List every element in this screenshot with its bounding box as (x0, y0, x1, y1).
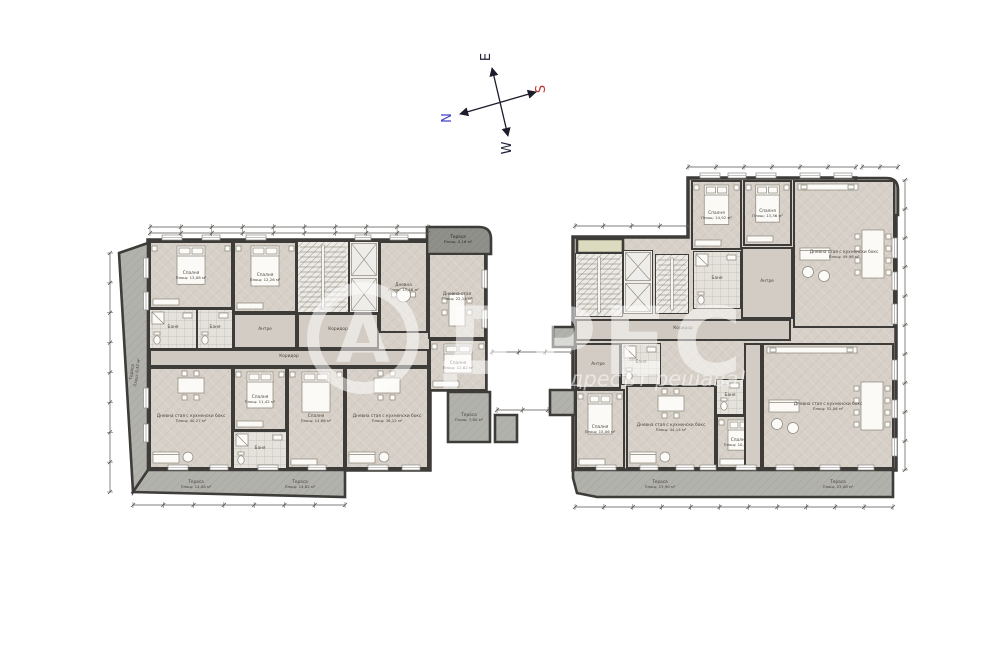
room-area: Площ: 13,08 м² (176, 275, 207, 280)
nightstand-icon (432, 344, 437, 349)
bed-pillow (304, 374, 315, 380)
bed-pillow (718, 187, 727, 193)
sink-icon (183, 313, 192, 318)
wardrobe-icon (720, 459, 746, 465)
toilet-tank (154, 332, 160, 335)
room: СпалняПлощ: 13,36 м² (744, 181, 791, 245)
kitchen-sink (801, 185, 807, 189)
room-label: Антре (760, 278, 774, 284)
room-area: Площ: 49,98 м² (829, 254, 860, 259)
compass-n-label: N (440, 113, 455, 123)
nightstand-icon (289, 246, 294, 251)
wardrobe-icon (237, 421, 263, 427)
nightstand-icon (746, 185, 751, 190)
armchair-icon (379, 452, 389, 462)
sink-icon (273, 435, 282, 440)
room-area: Площ: 14,62 м² (285, 484, 316, 489)
terrace-area (577, 239, 623, 253)
floor-plan-svg: ТерасаПлощ: 9,42 м²ТерасаПлощ: 14,08 м²Т… (0, 0, 1000, 666)
room: СпалняПлощ: 15,06 м² (576, 390, 624, 468)
room-name: Баня (168, 324, 179, 330)
room-name: Баня (210, 324, 221, 330)
room-label: Баня (712, 275, 723, 281)
room: Антре (742, 248, 792, 318)
chair-icon (182, 395, 187, 400)
armchair-icon (788, 423, 799, 434)
wardrobe-icon (153, 299, 179, 305)
armchair-icon (803, 267, 814, 278)
chair-icon (886, 246, 891, 251)
toilet-tank (721, 398, 727, 401)
room-area: Площ: 23,08 м² (823, 484, 854, 489)
armchair-icon (772, 419, 783, 430)
toilet-icon (238, 456, 244, 464)
toilet-icon (721, 402, 727, 410)
dining-table-icon (658, 396, 684, 411)
nightstand-icon (279, 372, 284, 377)
terrace-area (495, 415, 517, 442)
toilet-tank (238, 452, 244, 455)
kitchen-stove (847, 348, 853, 352)
watermark-slogan: адресът решава! (556, 367, 747, 391)
bed-pillow (249, 374, 259, 380)
sink-icon (219, 313, 228, 318)
watermark-logo-letter: А (336, 297, 390, 379)
compass-w-label: W (500, 141, 515, 154)
room-area: Площ: 36,12 м² (372, 418, 403, 423)
room-name: Антре (258, 326, 272, 332)
wardrobe-icon (579, 459, 605, 465)
chair-icon (886, 270, 891, 275)
room: Дневна стая с кухненски боксПлощ: 40,27 … (150, 368, 232, 468)
bed-pillow (192, 248, 203, 254)
wardrobe-icon (237, 303, 263, 309)
bed-pillow (730, 422, 738, 428)
room-label: Баня (210, 324, 221, 330)
room-area: Площ: 40,27 м² (176, 418, 207, 423)
bed-pillow (253, 248, 264, 254)
chair-icon (854, 410, 859, 415)
bed-pillow (758, 187, 767, 193)
room-area: Площ: 14,08 м² (181, 484, 212, 489)
floor-plan-page: ТерасаПлощ: 9,42 м²ТерасаПлощ: 14,08 м²Т… (0, 0, 1000, 666)
chair-icon (182, 371, 187, 376)
room-area: Площ: 14,86 м² (301, 418, 332, 423)
room-name: Коридор (279, 353, 299, 359)
chair-icon (855, 270, 860, 275)
room: СпалняПлощ: 12,26 м² (234, 242, 296, 312)
armchair-icon (660, 452, 670, 462)
chair-icon (886, 234, 891, 239)
terrace: ТерасаПлощ: 5,16 м² (427, 227, 491, 254)
sofa-icon (349, 452, 375, 463)
armchair-icon (819, 271, 830, 282)
room: Дневна стая с кухненски боксПлощ: 52,06 … (763, 344, 893, 468)
sink-icon (727, 255, 736, 260)
room-area: Площ: 12,26 м² (250, 277, 281, 282)
nightstand-icon (290, 372, 295, 377)
chair-icon (855, 234, 860, 239)
bed-pillow (706, 187, 715, 193)
room-label: Коридор (279, 353, 299, 359)
room-area: Площ: 15,06 м² (585, 429, 616, 434)
room-area: Площ: 5,16 м² (444, 239, 473, 244)
sofa-icon (153, 452, 179, 463)
chair-icon (885, 410, 890, 415)
chair-icon (854, 386, 859, 391)
room-area: Площ: 13,90 м² (645, 484, 676, 489)
room: Баня (198, 310, 232, 348)
room: Баня (234, 432, 286, 468)
room-label: Баня (255, 445, 266, 451)
kitchen-sink (770, 348, 776, 352)
compass-e-label: E (479, 53, 494, 61)
chair-icon (674, 413, 679, 418)
terrace (495, 415, 517, 442)
bed-pillow (769, 187, 778, 193)
room-area: Площ: 44,14 м² (656, 427, 687, 432)
room: СпалняПлощ: 14,92 м² (692, 181, 741, 249)
bed-pillow (261, 374, 271, 380)
room-label: Баня (168, 324, 179, 330)
compass-rose: E W N S (440, 53, 549, 155)
chair-icon (886, 258, 891, 263)
chair-icon (662, 413, 667, 418)
kitchen-stove (848, 185, 854, 189)
toilet-tank (202, 332, 208, 335)
room: СпалняПлощ: 11,42 м² (234, 368, 286, 430)
wardrobe-icon (747, 236, 773, 242)
sofa-icon (630, 452, 656, 463)
kitchen-counter-icon (767, 347, 857, 353)
terrace: ТерасаПлощ: 9,42 м² (119, 243, 148, 492)
chair-icon (194, 395, 199, 400)
room-area: Площ: 13,36 м² (752, 213, 783, 218)
terrace (577, 239, 623, 253)
room-name: Баня (255, 445, 266, 451)
room: Антре (234, 314, 296, 348)
nightstand-icon (152, 246, 157, 251)
dining-table-icon (861, 382, 883, 430)
toilet-icon (202, 336, 208, 344)
toilet-icon (154, 336, 160, 344)
watermark: А ДРЕС адресът решава! (313, 288, 748, 397)
nightstand-icon (694, 185, 699, 190)
nightstand-icon (236, 372, 241, 377)
room-area: Площ: 11,42 м² (245, 399, 276, 404)
compass-s-label: S (534, 85, 549, 93)
room-name: Баня (712, 275, 723, 281)
bed-pillow (266, 248, 277, 254)
nightstand-icon (734, 185, 739, 190)
room: СпалняПлощ: 13,08 м² (150, 242, 232, 308)
room-area: Площ: 52,06 м² (813, 406, 844, 411)
room-area: Площ: 7,80 м² (455, 417, 484, 422)
nightstand-icon (784, 185, 789, 190)
nightstand-icon (236, 246, 241, 251)
wardrobe-icon (695, 240, 721, 246)
room: Дневна стая с кухненски боксПлощ: 49,98 … (794, 181, 894, 327)
room: Баня (150, 310, 196, 348)
room-area: Площ: 14,92 м² (701, 215, 732, 220)
room-label: Антре (258, 326, 272, 332)
chair-icon (885, 398, 890, 403)
terrace: ТерасаПлощ: 7,80 м² (448, 392, 490, 442)
chair-icon (885, 386, 890, 391)
chair-icon (390, 395, 395, 400)
room-name: Антре (760, 278, 774, 284)
chair-icon (378, 395, 383, 400)
armchair-icon (183, 452, 193, 462)
bed-pillow (179, 248, 190, 254)
chair-icon (854, 422, 859, 427)
nightstand-icon (225, 246, 230, 251)
wardrobe-icon (291, 459, 317, 465)
room: Дневна стая с кухненски боксПлощ: 44,14 … (627, 386, 715, 468)
chair-icon (411, 292, 416, 297)
chair-icon (885, 422, 890, 427)
chair-icon (194, 371, 199, 376)
nightstand-icon (719, 420, 724, 425)
dining-table-icon (178, 378, 204, 393)
